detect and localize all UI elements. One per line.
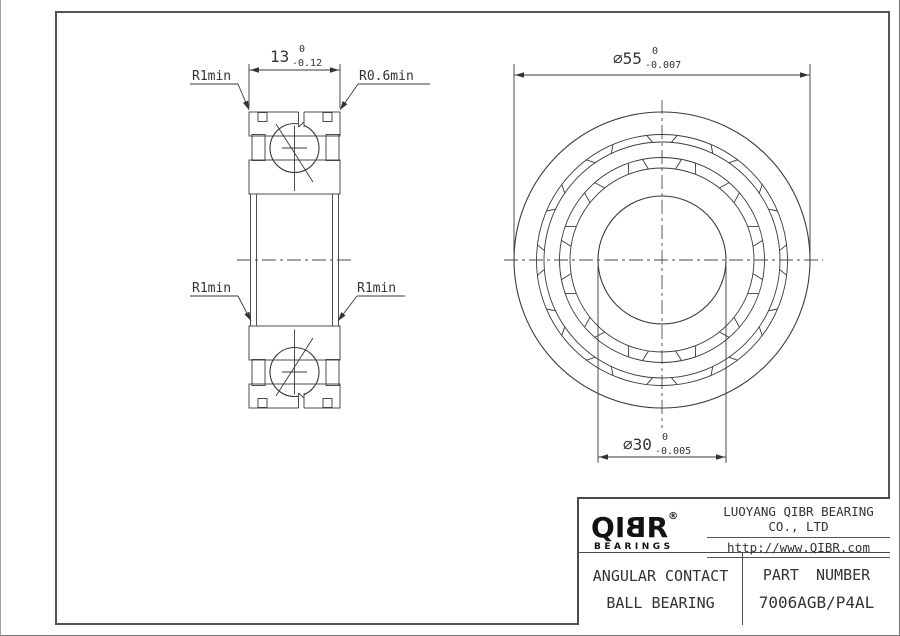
- title-block: QIBR® BEARINGS LUOYANG QIBR BEARING CO.,…: [577, 497, 890, 625]
- radius-callout-top-right: R0.6min: [338, 69, 430, 112]
- section-top-half: [249, 111, 340, 194]
- product-type-line2: BALL BEARING: [579, 594, 742, 612]
- part-number-value: 7006AGB/P4AL: [743, 593, 890, 612]
- seal-corner-right-bottom: [323, 399, 332, 408]
- radius-callout-mid-right: R1min: [336, 281, 405, 323]
- od-dimension-tol-lower: -0.007: [645, 60, 681, 71]
- width-dimension-value: 13: [270, 47, 289, 66]
- company-name: LUOYANG QIBR BEARING CO., LTD: [707, 499, 890, 538]
- od-dimension-tol-upper: 0: [652, 46, 658, 57]
- company-info: LUOYANG QIBR BEARING CO., LTD http://www…: [707, 499, 890, 552]
- width-dimension: 13 0 -0.12: [249, 44, 340, 108]
- width-dimension-tol-upper: 0: [299, 44, 305, 55]
- radius-label: R1min: [192, 69, 231, 84]
- cage-right-bottom: [326, 360, 339, 386]
- company-logo: QIBR® BEARINGS: [579, 499, 707, 552]
- title-block-detail-row: ANGULAR CONTACT BALL BEARING PART NUMBER…: [579, 553, 890, 625]
- radius-callout-top-left: R1min: [190, 69, 252, 111]
- radius-callout-mid-left: R1min: [190, 281, 253, 322]
- front-view: ⌀55 0 -0.007 ⌀30 0 -0.005: [504, 46, 823, 463]
- title-block-header-row: QIBR® BEARINGS LUOYANG QIBR BEARING CO.,…: [579, 499, 890, 553]
- radius-label: R1min: [192, 281, 231, 296]
- logo-wordmark: QIBR®: [591, 502, 707, 542]
- logo-subtext: BEARINGS: [591, 542, 707, 552]
- radius-label: R0.6min: [359, 69, 414, 84]
- width-dimension-tol-lower: -0.12: [292, 58, 322, 69]
- section-view: 13 0 -0.12 R1min R0.6min R1min: [190, 44, 430, 409]
- product-type-line1: ANGULAR CONTACT: [579, 567, 742, 585]
- section-bottom-half: [249, 326, 340, 409]
- product-type-cell: ANGULAR CONTACT BALL BEARING: [579, 553, 743, 625]
- registered-mark: ®: [668, 511, 678, 522]
- seal-corner-left-bottom: [258, 399, 267, 408]
- cage-left-top: [252, 135, 265, 161]
- cage-right-top: [326, 135, 339, 161]
- bore-dimension-value: ⌀30: [623, 435, 652, 454]
- radius-label: R1min: [357, 281, 396, 296]
- bore-dimension-tol-lower: -0.005: [655, 446, 691, 457]
- seal-corner-left-top: [258, 113, 267, 122]
- part-number-label: PART NUMBER: [743, 566, 890, 584]
- drawing-sheet: 13 0 -0.12 R1min R0.6min R1min: [0, 0, 900, 636]
- od-dimension-value: ⌀55: [613, 49, 642, 68]
- part-number-cell: PART NUMBER 7006AGB/P4AL: [743, 553, 890, 625]
- seal-corner-right-top: [323, 113, 332, 122]
- bore-dimension-tol-upper: 0: [662, 432, 668, 443]
- cage-left-bottom: [252, 360, 265, 386]
